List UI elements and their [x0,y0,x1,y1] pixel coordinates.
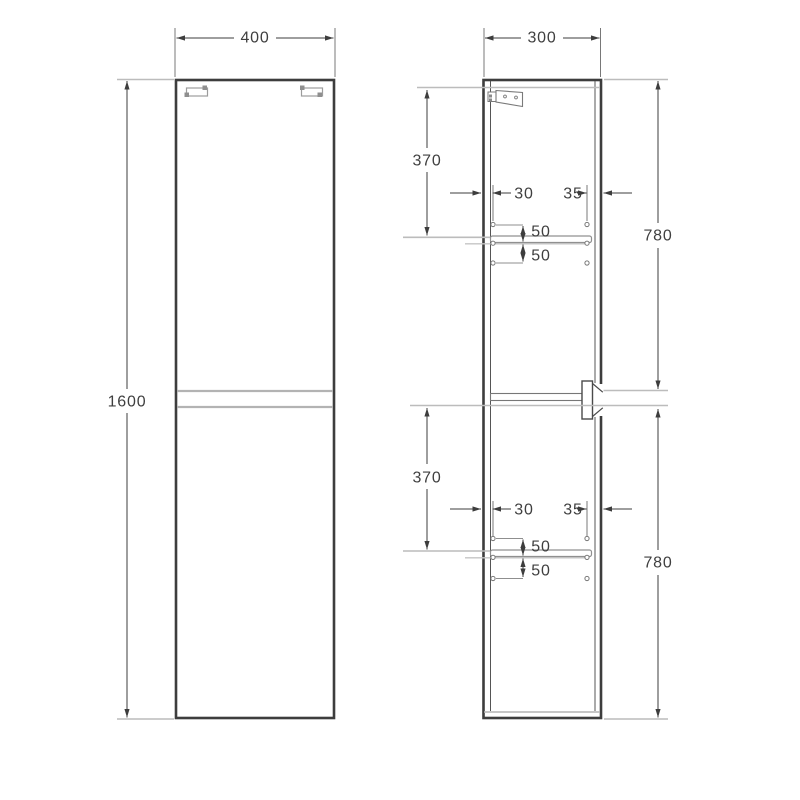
shelf-pin-hole [585,241,589,245]
middle-shelf-profile [491,394,583,401]
shelf-pin-hole [491,261,495,265]
front-view [176,80,334,718]
shelf-pin-hole [491,241,495,245]
shelf-pin-hole [585,576,589,580]
shelf-pin-hole [491,555,495,559]
dim-lower-hole-back-label: 30 [514,502,533,519]
shelf-pin-hole [585,222,589,226]
shelf-pin-hole [585,261,589,265]
hanger-hook-detail [489,99,492,102]
dim-lower-door-height-label: 780 [643,555,672,572]
side-view [417,80,604,718]
dim-upper-hole-front-label: 35 [563,186,582,203]
shelf-pin-hole [491,536,495,540]
shelf-pin-hole [585,536,589,540]
dim-side-depth-label: 300 [527,30,556,47]
technical-drawing-canvas: 400 300 1600 370 30 35 50 50 780 370 30 … [0,0,800,800]
hanger-screw [300,86,305,91]
dim-lower-hole-front-label: 35 [563,502,582,519]
shelf-pin-hole [585,555,589,559]
dim-front-width-label: 400 [240,30,269,47]
front-view-cabinet-outline [176,80,334,718]
hanger-screw [185,93,190,98]
dim-lower-pitch-above-label: 50 [531,539,550,556]
hanger-screw [318,93,323,98]
hanger-hook-detail [489,95,492,98]
drawing-svg: 400 300 1600 370 30 35 50 50 780 370 30 … [0,0,800,800]
dim-lower-shelf-offset-label: 370 [412,470,441,487]
dim-upper-hole-back-label: 30 [514,186,533,203]
dim-front-height-label: 1600 [108,394,147,411]
dim-lower-pitch-below-label: 50 [531,563,550,580]
shelf-pin-hole [491,576,495,580]
dim-upper-door-height-label: 780 [643,228,672,245]
shelf-pin-hole [491,222,495,226]
hanger-screw [203,86,208,91]
handle-plate [582,381,593,419]
dim-upper-pitch-above-label: 50 [531,224,550,241]
dim-upper-shelf-offset-label: 370 [412,153,441,170]
dim-upper-pitch-below-label: 50 [531,248,550,265]
